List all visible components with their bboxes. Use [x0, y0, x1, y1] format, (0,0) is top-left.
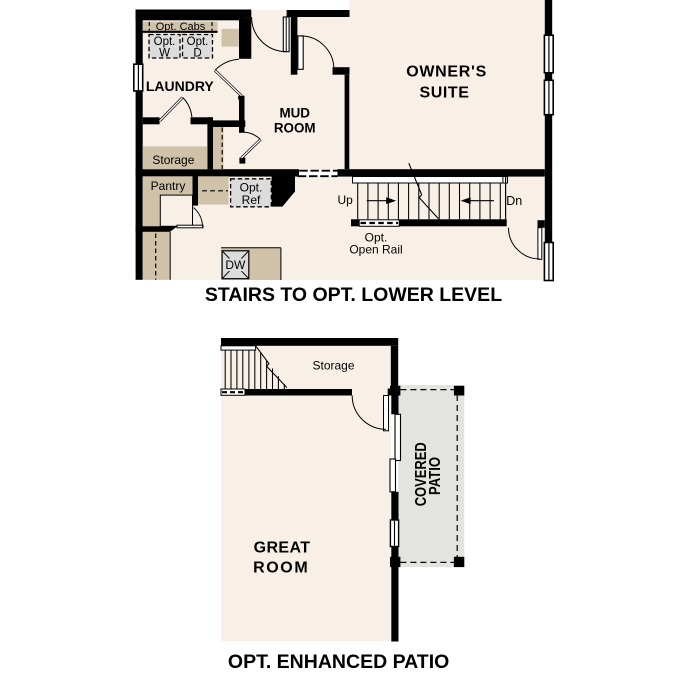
svg-text:Pantry: Pantry: [151, 179, 186, 193]
svg-text:Open Rail: Open Rail: [349, 243, 402, 257]
svg-text:Storage: Storage: [152, 153, 194, 167]
svg-text:PATIO: PATIO: [427, 457, 444, 495]
svg-text:Storage: Storage: [312, 359, 354, 373]
svg-text:D: D: [193, 48, 201, 60]
svg-text:Up: Up: [338, 193, 354, 207]
svg-text:Opt.: Opt.: [154, 36, 176, 48]
svg-text:DW: DW: [225, 258, 246, 272]
svg-text:Ref: Ref: [242, 193, 261, 207]
svg-text:GREAT: GREAT: [254, 539, 311, 556]
svg-text:Dn: Dn: [506, 194, 522, 208]
svg-text:ROOM: ROOM: [253, 560, 309, 577]
svg-text:Opt.: Opt.: [187, 36, 209, 48]
svg-text:MUD: MUD: [279, 106, 310, 121]
svg-text:SUITE: SUITE: [419, 84, 469, 101]
svg-text:STAIRS TO OPT. LOWER LEVEL: STAIRS TO OPT. LOWER LEVEL: [205, 284, 502, 306]
svg-text:W: W: [159, 48, 170, 60]
svg-text:OPT. ENHANCED PATIO: OPT. ENHANCED PATIO: [228, 651, 449, 673]
svg-text:Opt. Cabs: Opt. Cabs: [156, 21, 206, 33]
svg-text:LAUNDRY: LAUNDRY: [146, 78, 215, 94]
svg-text:OWNER'S: OWNER'S: [406, 63, 487, 80]
svg-text:ROOM: ROOM: [274, 120, 316, 135]
